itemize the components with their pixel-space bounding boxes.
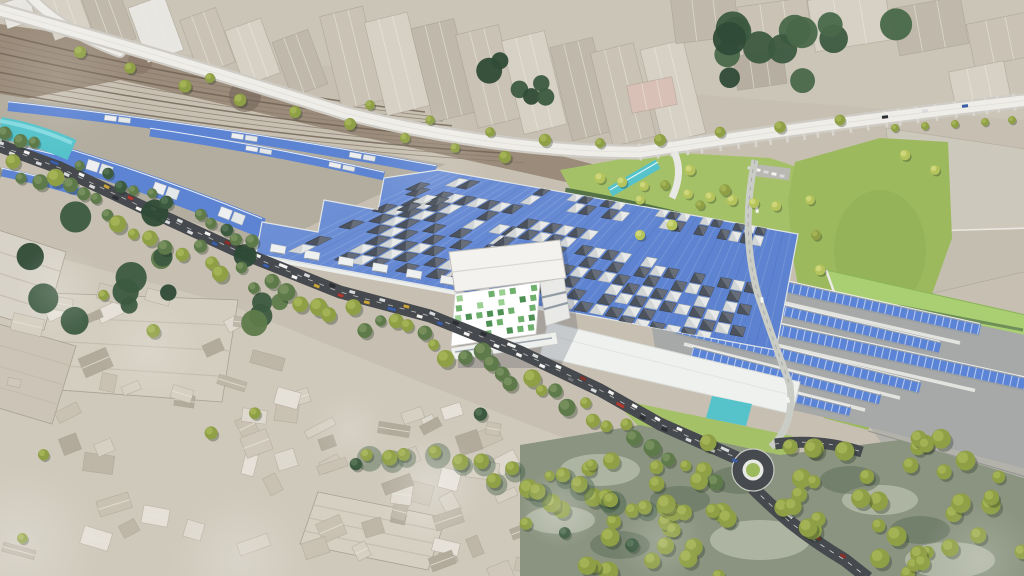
tree-highlight xyxy=(691,473,701,483)
tree-highlight xyxy=(504,377,512,385)
facade-panel xyxy=(497,319,504,326)
tree-highlight xyxy=(549,384,557,392)
haze-patch xyxy=(310,390,390,470)
tree-highlight xyxy=(912,431,921,440)
facade-panel xyxy=(466,304,473,311)
tree-highlight xyxy=(560,400,570,410)
tree-highlight xyxy=(537,385,543,391)
tree-highlight xyxy=(429,340,435,346)
tree-highlight xyxy=(222,225,229,232)
tree-highlight xyxy=(888,528,899,539)
tree-highlight xyxy=(475,408,482,415)
roundabout-island xyxy=(746,463,760,477)
tree-highlight xyxy=(487,474,495,482)
tree-highlight xyxy=(662,454,670,462)
tree-highlight xyxy=(266,275,274,283)
tree-highlight xyxy=(196,210,202,216)
tree-highlight xyxy=(16,173,22,179)
tree-cluster xyxy=(719,67,740,88)
tree-highlight xyxy=(78,188,85,195)
tree-highlight xyxy=(812,513,820,521)
tree-highlight xyxy=(892,125,896,129)
tree-highlight xyxy=(500,152,507,159)
tree-highlight xyxy=(835,115,841,121)
tree-highlight xyxy=(806,196,811,201)
tree-highlight xyxy=(786,499,796,509)
tree-highlight xyxy=(290,107,297,114)
tree-highlight xyxy=(540,135,547,142)
tree-highlight xyxy=(793,488,802,497)
tree-highlight xyxy=(75,161,81,167)
tree-highlight xyxy=(904,459,913,468)
tree-highlight xyxy=(438,351,447,360)
tree-highlight xyxy=(793,470,804,481)
tree-highlight xyxy=(806,442,815,451)
tree-highlight xyxy=(707,505,715,513)
facade-panel xyxy=(486,320,493,327)
tree-highlight xyxy=(250,408,256,414)
tree-highlight xyxy=(685,165,691,171)
tree-highlight xyxy=(322,308,330,316)
tree-highlight xyxy=(602,529,612,539)
tree-highlight xyxy=(750,199,756,205)
facade-panel xyxy=(528,314,535,321)
tree-cluster xyxy=(113,279,139,305)
tree-cluster xyxy=(160,284,176,300)
facade-panel xyxy=(520,286,527,293)
tree-highlight xyxy=(933,430,944,441)
facade-panel xyxy=(529,304,536,311)
tree-highlight xyxy=(485,357,494,366)
facade-panel xyxy=(509,298,516,305)
tree-highlight xyxy=(279,284,289,294)
tree-highlight xyxy=(696,201,701,206)
tree-highlight xyxy=(48,170,58,180)
tree-highlight xyxy=(359,324,367,332)
tree-highlight xyxy=(627,431,636,440)
tree-highlight xyxy=(366,101,371,106)
tree-highlight xyxy=(720,510,730,520)
tree-highlight xyxy=(587,460,593,466)
tree-highlight xyxy=(720,185,726,191)
tree-highlight xyxy=(640,182,645,187)
haze-patch xyxy=(15,245,105,335)
facade-panel xyxy=(509,288,516,295)
tree-highlight xyxy=(116,182,123,189)
tree-highlight xyxy=(668,220,674,226)
tree-highlight xyxy=(180,80,187,87)
tree-highlight xyxy=(661,181,666,186)
tree-highlight xyxy=(776,500,786,510)
tree-highlight xyxy=(697,463,706,472)
tree-highlight xyxy=(618,178,624,184)
tree-highlight xyxy=(294,298,303,307)
facade-panel xyxy=(496,329,503,336)
parked-car xyxy=(763,170,768,173)
facade-panel xyxy=(456,295,463,302)
facade-panel xyxy=(456,305,463,312)
tree-highlight xyxy=(347,300,356,309)
tree-highlight xyxy=(143,232,152,241)
tree-cluster xyxy=(713,22,746,55)
tree-highlight xyxy=(206,74,212,80)
facade-panel xyxy=(475,322,482,329)
tree-cluster xyxy=(790,68,815,93)
aerial-render-stage xyxy=(0,0,1024,576)
facade-panel xyxy=(507,317,514,324)
tree-highlight xyxy=(496,368,504,376)
tree-highlight xyxy=(993,471,1000,478)
facade-panel xyxy=(506,327,513,334)
tree-highlight xyxy=(604,494,612,502)
tree-cluster xyxy=(880,8,912,40)
tree-highlight xyxy=(982,119,986,123)
tree-highlight xyxy=(650,477,659,486)
tree-highlight xyxy=(912,547,921,556)
tree-highlight xyxy=(177,249,184,256)
facade-panel xyxy=(497,309,504,316)
tree-highlight xyxy=(91,194,97,200)
tree-highlight xyxy=(837,443,848,454)
tree-highlight xyxy=(129,186,135,192)
tree-highlight xyxy=(985,491,994,500)
tree-highlight xyxy=(7,155,15,163)
tree-highlight xyxy=(706,193,712,199)
tree-cluster xyxy=(533,75,549,91)
facade-panel xyxy=(517,326,524,333)
tree-cluster xyxy=(476,58,502,84)
tree-cluster xyxy=(241,310,267,336)
tree-highlight xyxy=(525,371,535,381)
facade-panel xyxy=(498,299,505,306)
facade-panel xyxy=(476,312,483,319)
tree-highlight xyxy=(684,190,689,195)
facade-panel xyxy=(465,313,472,320)
parked-car xyxy=(779,174,784,177)
tree-highlight xyxy=(206,219,212,225)
vehicle xyxy=(760,297,764,303)
tree-highlight xyxy=(784,440,792,448)
tree-highlight xyxy=(655,135,662,142)
tree-highlight xyxy=(816,266,822,272)
haze-patch xyxy=(100,300,200,400)
tree-highlight xyxy=(872,550,883,561)
facade-panel xyxy=(467,294,474,301)
tree-highlight xyxy=(161,197,168,204)
facade-panel xyxy=(487,310,494,317)
tree-highlight xyxy=(579,558,589,568)
tree-highlight xyxy=(311,299,321,309)
facade-panel xyxy=(478,292,485,299)
tree-highlight xyxy=(931,166,936,171)
tree-highlight xyxy=(376,316,382,322)
tree-highlight xyxy=(39,450,45,456)
tree-highlight xyxy=(636,196,641,201)
tree-highlight xyxy=(701,436,710,445)
tree-highlight xyxy=(235,95,242,102)
tree-highlight xyxy=(247,235,254,242)
tree-highlight xyxy=(775,122,781,128)
tree-cluster xyxy=(60,201,91,232)
parked-car xyxy=(771,172,776,175)
tree-highlight xyxy=(812,231,818,237)
tree-highlight xyxy=(195,241,202,248)
tree-highlight xyxy=(110,217,120,227)
tree-highlight xyxy=(249,283,255,289)
haze-patch xyxy=(520,468,600,548)
scene-svg xyxy=(0,0,1024,576)
tree-highlight xyxy=(206,257,213,264)
tree-highlight xyxy=(920,439,928,447)
tree-highlight xyxy=(651,461,659,469)
tree-highlight xyxy=(237,263,243,269)
facade-panel xyxy=(530,295,537,302)
tree-highlight xyxy=(908,559,915,566)
facade-panel xyxy=(499,289,506,296)
tree-highlight xyxy=(772,202,778,208)
facade-panel xyxy=(487,301,494,308)
tree-highlight xyxy=(861,471,869,479)
tree-highlight xyxy=(148,189,154,195)
tree-highlight xyxy=(621,419,628,426)
haze-patch xyxy=(370,100,490,220)
facade-panel xyxy=(528,324,535,331)
tree-highlight xyxy=(231,234,238,241)
tree-highlight xyxy=(645,440,655,450)
tree-highlight xyxy=(922,123,926,127)
tree-highlight xyxy=(103,169,109,175)
facade-panel xyxy=(519,296,526,303)
tree-highlight xyxy=(159,241,167,249)
tree-highlight xyxy=(581,398,587,404)
tree-highlight xyxy=(402,320,409,327)
facade-panel xyxy=(477,302,484,309)
tree-highlight xyxy=(1009,117,1013,121)
tree-highlight xyxy=(938,465,946,473)
tree-cluster xyxy=(743,31,775,63)
tree-highlight xyxy=(800,520,810,530)
tree-highlight xyxy=(873,520,881,528)
tree-highlight xyxy=(952,121,956,125)
tree-highlight xyxy=(390,315,398,323)
roundabout xyxy=(732,449,774,491)
tree-highlight xyxy=(601,421,608,428)
facade-panel xyxy=(519,306,526,313)
facade-panel xyxy=(508,307,515,314)
facade-panel xyxy=(518,316,525,323)
tree-highlight xyxy=(957,452,968,463)
tree-highlight xyxy=(475,344,485,354)
tree-highlight xyxy=(129,229,135,235)
tree-cluster xyxy=(786,17,818,49)
tree-highlight xyxy=(213,267,222,276)
tree-highlight xyxy=(808,476,815,483)
tree-highlight xyxy=(853,490,864,501)
tree-highlight xyxy=(716,127,722,133)
facade-panel xyxy=(453,335,460,342)
tree-highlight xyxy=(419,327,427,335)
tree-highlight xyxy=(103,210,109,216)
tree-highlight xyxy=(34,175,43,184)
haze-patch xyxy=(375,432,485,542)
tree-highlight xyxy=(595,173,601,179)
tree-cluster xyxy=(818,12,843,37)
tree-highlight xyxy=(345,119,352,126)
tree-highlight xyxy=(901,150,907,156)
tree-highlight xyxy=(596,139,601,144)
tree-highlight xyxy=(681,461,687,467)
tree-highlight xyxy=(604,454,613,463)
tree-highlight xyxy=(206,427,213,434)
facade-panel xyxy=(488,291,495,298)
tree-highlight xyxy=(587,415,595,423)
tree-highlight xyxy=(506,462,514,470)
tree-highlight xyxy=(486,128,491,133)
facade-panel xyxy=(531,285,538,292)
tree-highlight xyxy=(64,179,72,187)
tree-highlight xyxy=(636,231,642,237)
tree-highlight xyxy=(459,351,467,359)
